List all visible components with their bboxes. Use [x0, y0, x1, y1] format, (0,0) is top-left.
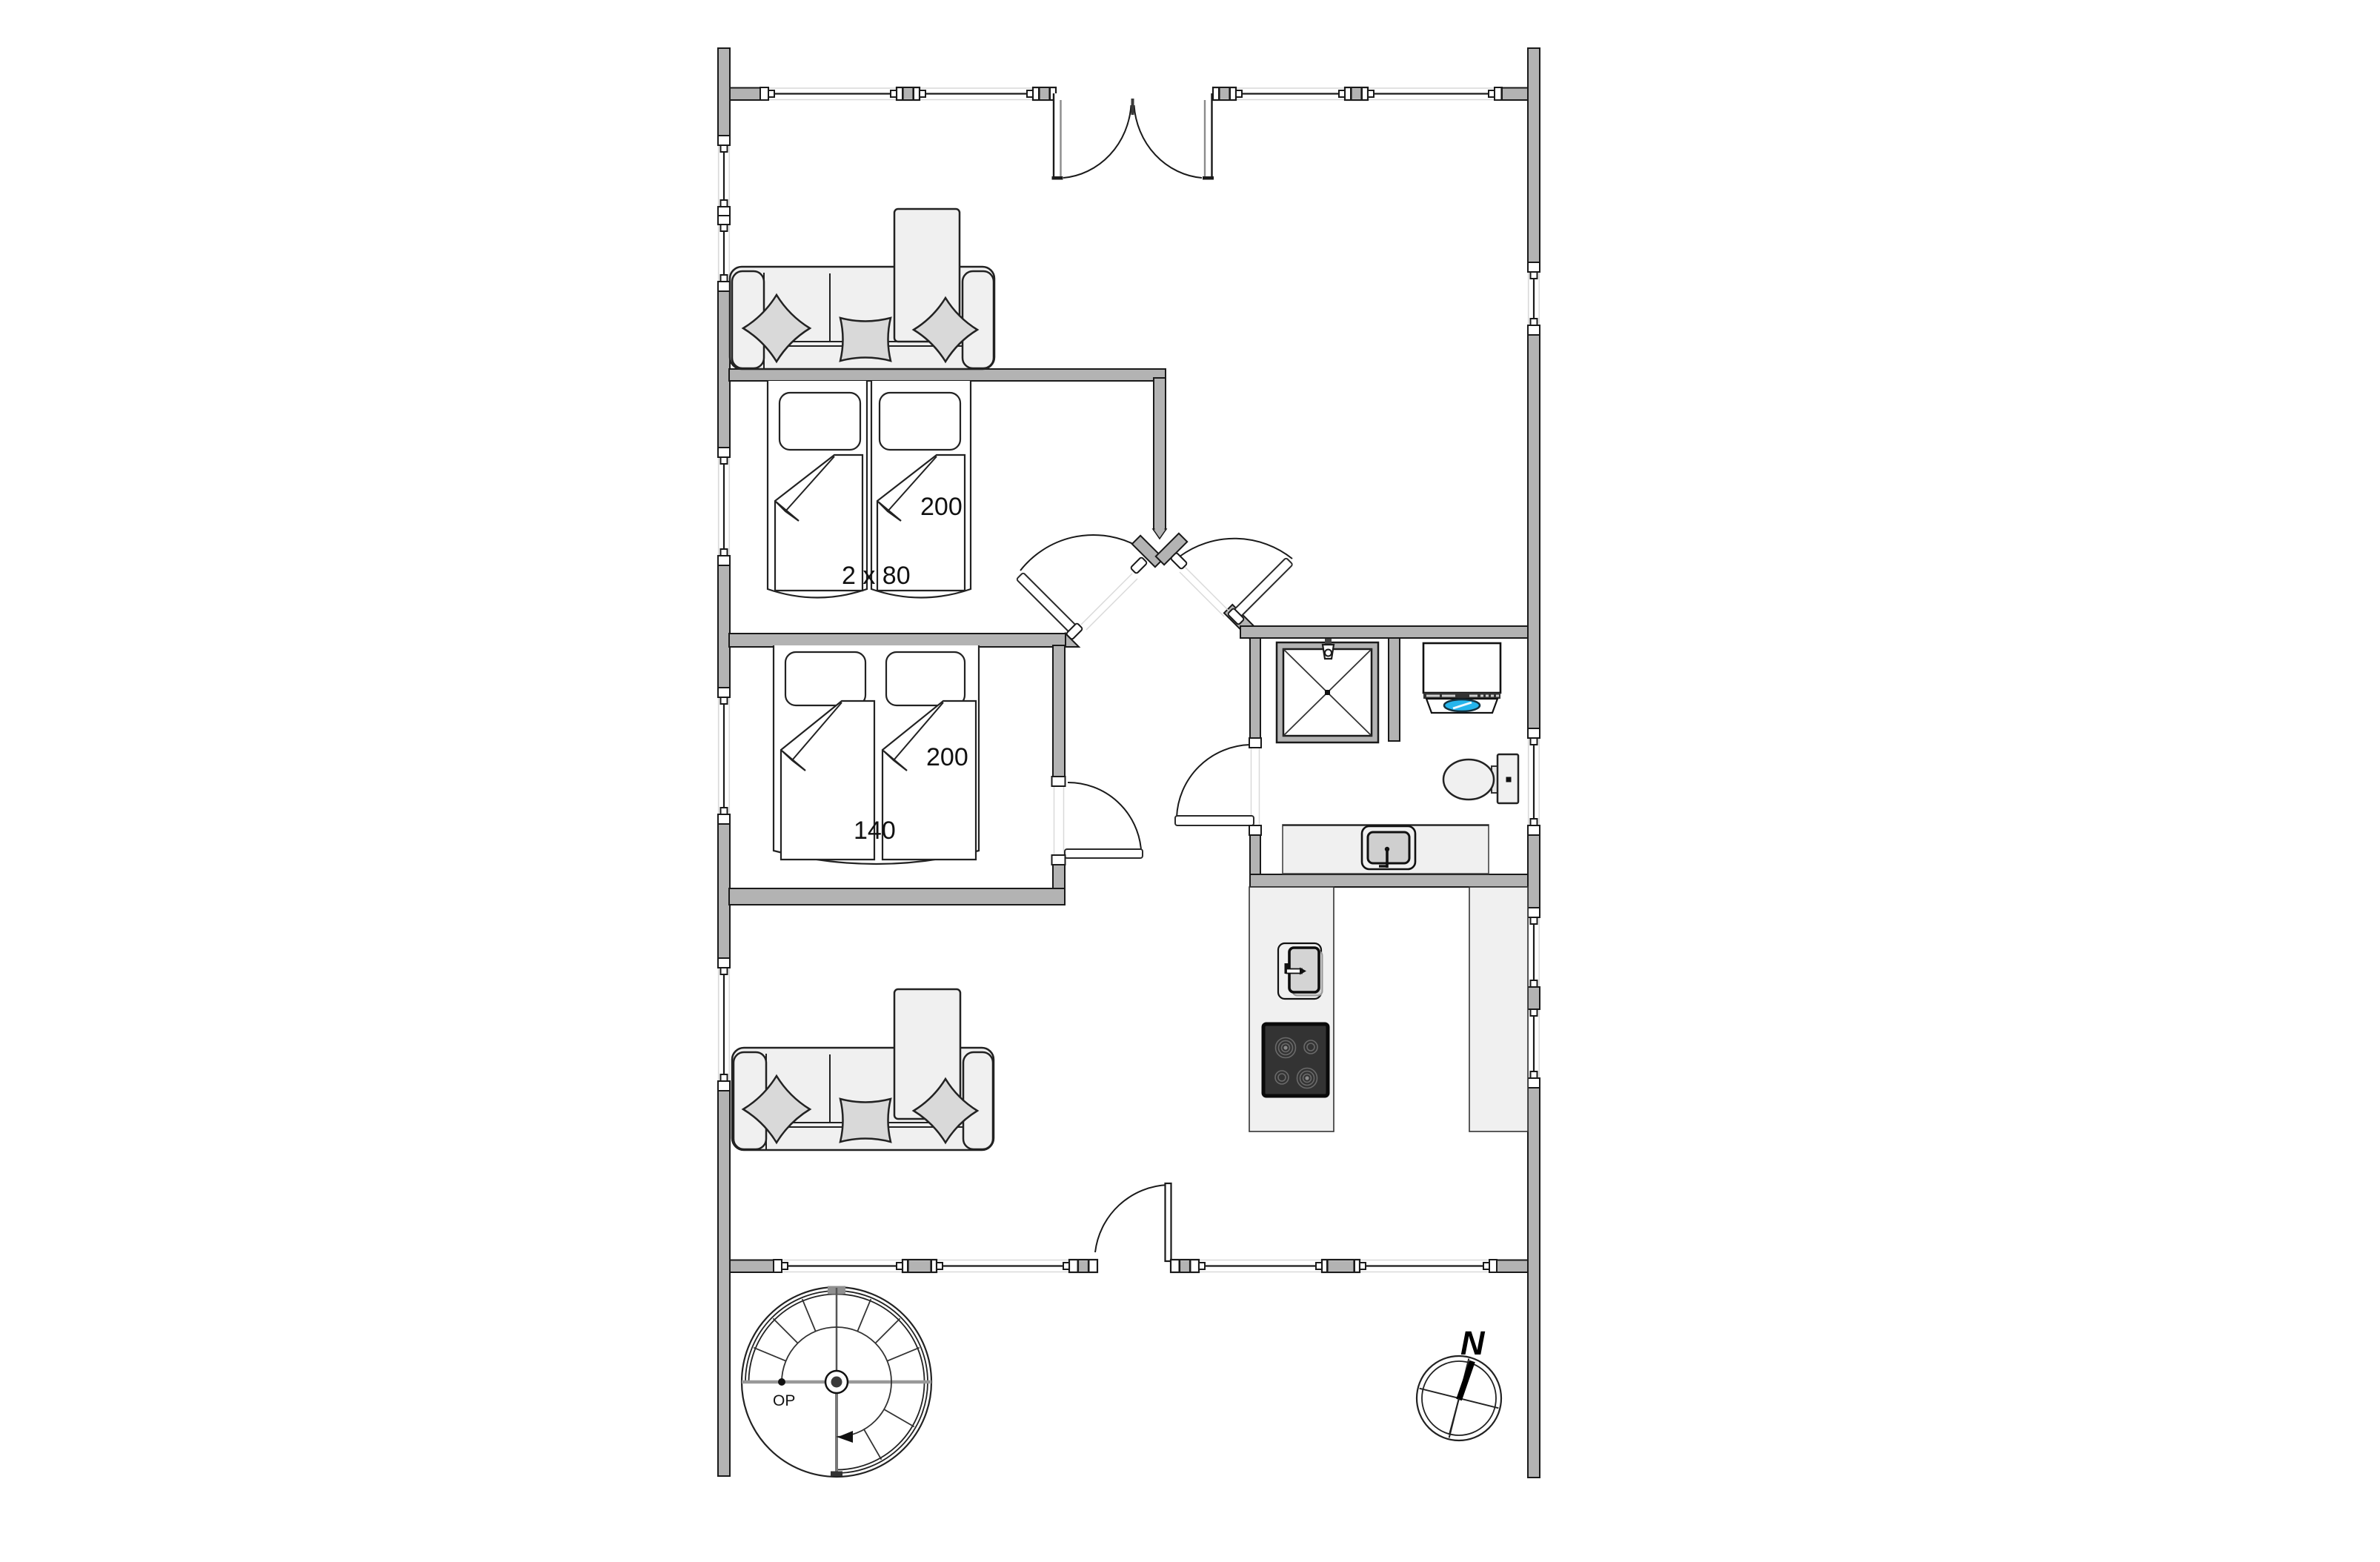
svg-text:N: N: [1460, 1324, 1486, 1362]
svg-text:200: 200: [926, 743, 968, 771]
svg-text:140: 140: [854, 817, 896, 845]
svg-text:OP: OP: [773, 1392, 795, 1409]
svg-text:200: 200: [920, 493, 963, 521]
svg-text:2 x 80: 2 x 80: [842, 562, 911, 590]
